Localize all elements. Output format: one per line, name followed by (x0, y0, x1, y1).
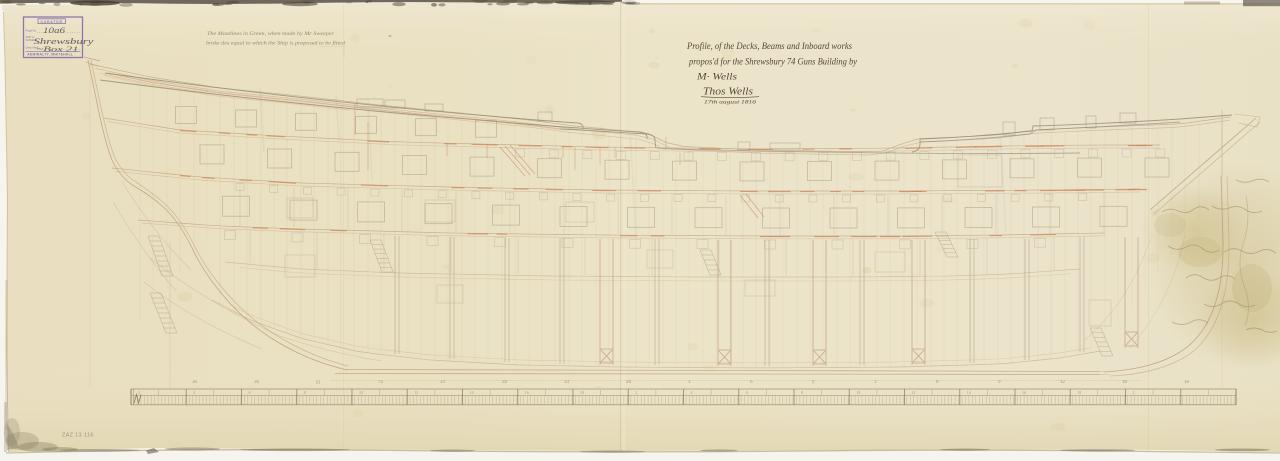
svg-text:10: 10 (359, 390, 363, 395)
svg-text:10a6: 10a6 (43, 26, 65, 35)
svg-text:6: 6 (249, 390, 251, 395)
svg-text:Thos Wells: Thos Wells (703, 87, 753, 98)
svg-text:14: 14 (470, 390, 474, 395)
svg-text:1b: 1b (1122, 380, 1128, 385)
svg-text:6: 6 (746, 390, 748, 395)
svg-text:yj: yj (316, 380, 320, 385)
svg-text:2b: 2b (626, 380, 632, 385)
svg-text:2: 2 (1133, 390, 1135, 395)
svg-text:3b: 3b (192, 380, 198, 385)
svg-text:17th august 1816: 17th august 1816 (704, 100, 756, 106)
svg-text:12: 12 (414, 390, 418, 395)
svg-text:12: 12 (1060, 380, 1066, 385)
svg-text:ZAZ 13 116: ZAZ 13 116 (62, 433, 94, 439)
svg-text:~Box 21: ~Box 21 (37, 45, 79, 54)
svg-text:broke des equal to which the S: broke des equal to which the Ship is pro… (206, 40, 345, 47)
svg-text:propos'd for the Shrewsbury 74: propos'd for the Shrewsbury 74 Guns Buil… (688, 57, 857, 68)
svg-text:2b: 2b (502, 380, 508, 385)
svg-text:8: 8 (801, 390, 803, 395)
svg-text:CURATOR: CURATOR (41, 20, 63, 24)
svg-text:18: 18 (1077, 390, 1081, 395)
svg-text:16: 16 (525, 390, 529, 395)
svg-text:Profile, of the Decks, Beams a: Profile, of the Decks, Beams and Inboard… (686, 41, 852, 52)
svg-text:10: 10 (856, 390, 860, 395)
svg-text:30: 30 (254, 380, 260, 385)
svg-text:8: 8 (304, 390, 306, 395)
svg-text:33: 33 (440, 380, 446, 385)
svg-text:2: 2 (635, 390, 637, 395)
svg-text:18: 18 (580, 390, 584, 395)
svg-text:4: 4 (691, 390, 693, 395)
svg-text:14: 14 (967, 390, 971, 395)
svg-text:Regd No.: Regd No. (26, 29, 38, 33)
svg-text:M· Wells: M· Wells (696, 72, 737, 83)
svg-text:18: 18 (1184, 380, 1190, 385)
svg-text:12: 12 (912, 390, 916, 395)
svg-text:16: 16 (1022, 390, 1026, 395)
svg-text:4: 4 (193, 390, 195, 395)
svg-text:33: 33 (564, 380, 570, 385)
svg-text:2: 2 (138, 390, 140, 395)
svg-text:The Mastlines in Green, when m: The Mastlines in Green, when made by Mr … (207, 31, 335, 37)
svg-text:7a: 7a (378, 380, 384, 385)
